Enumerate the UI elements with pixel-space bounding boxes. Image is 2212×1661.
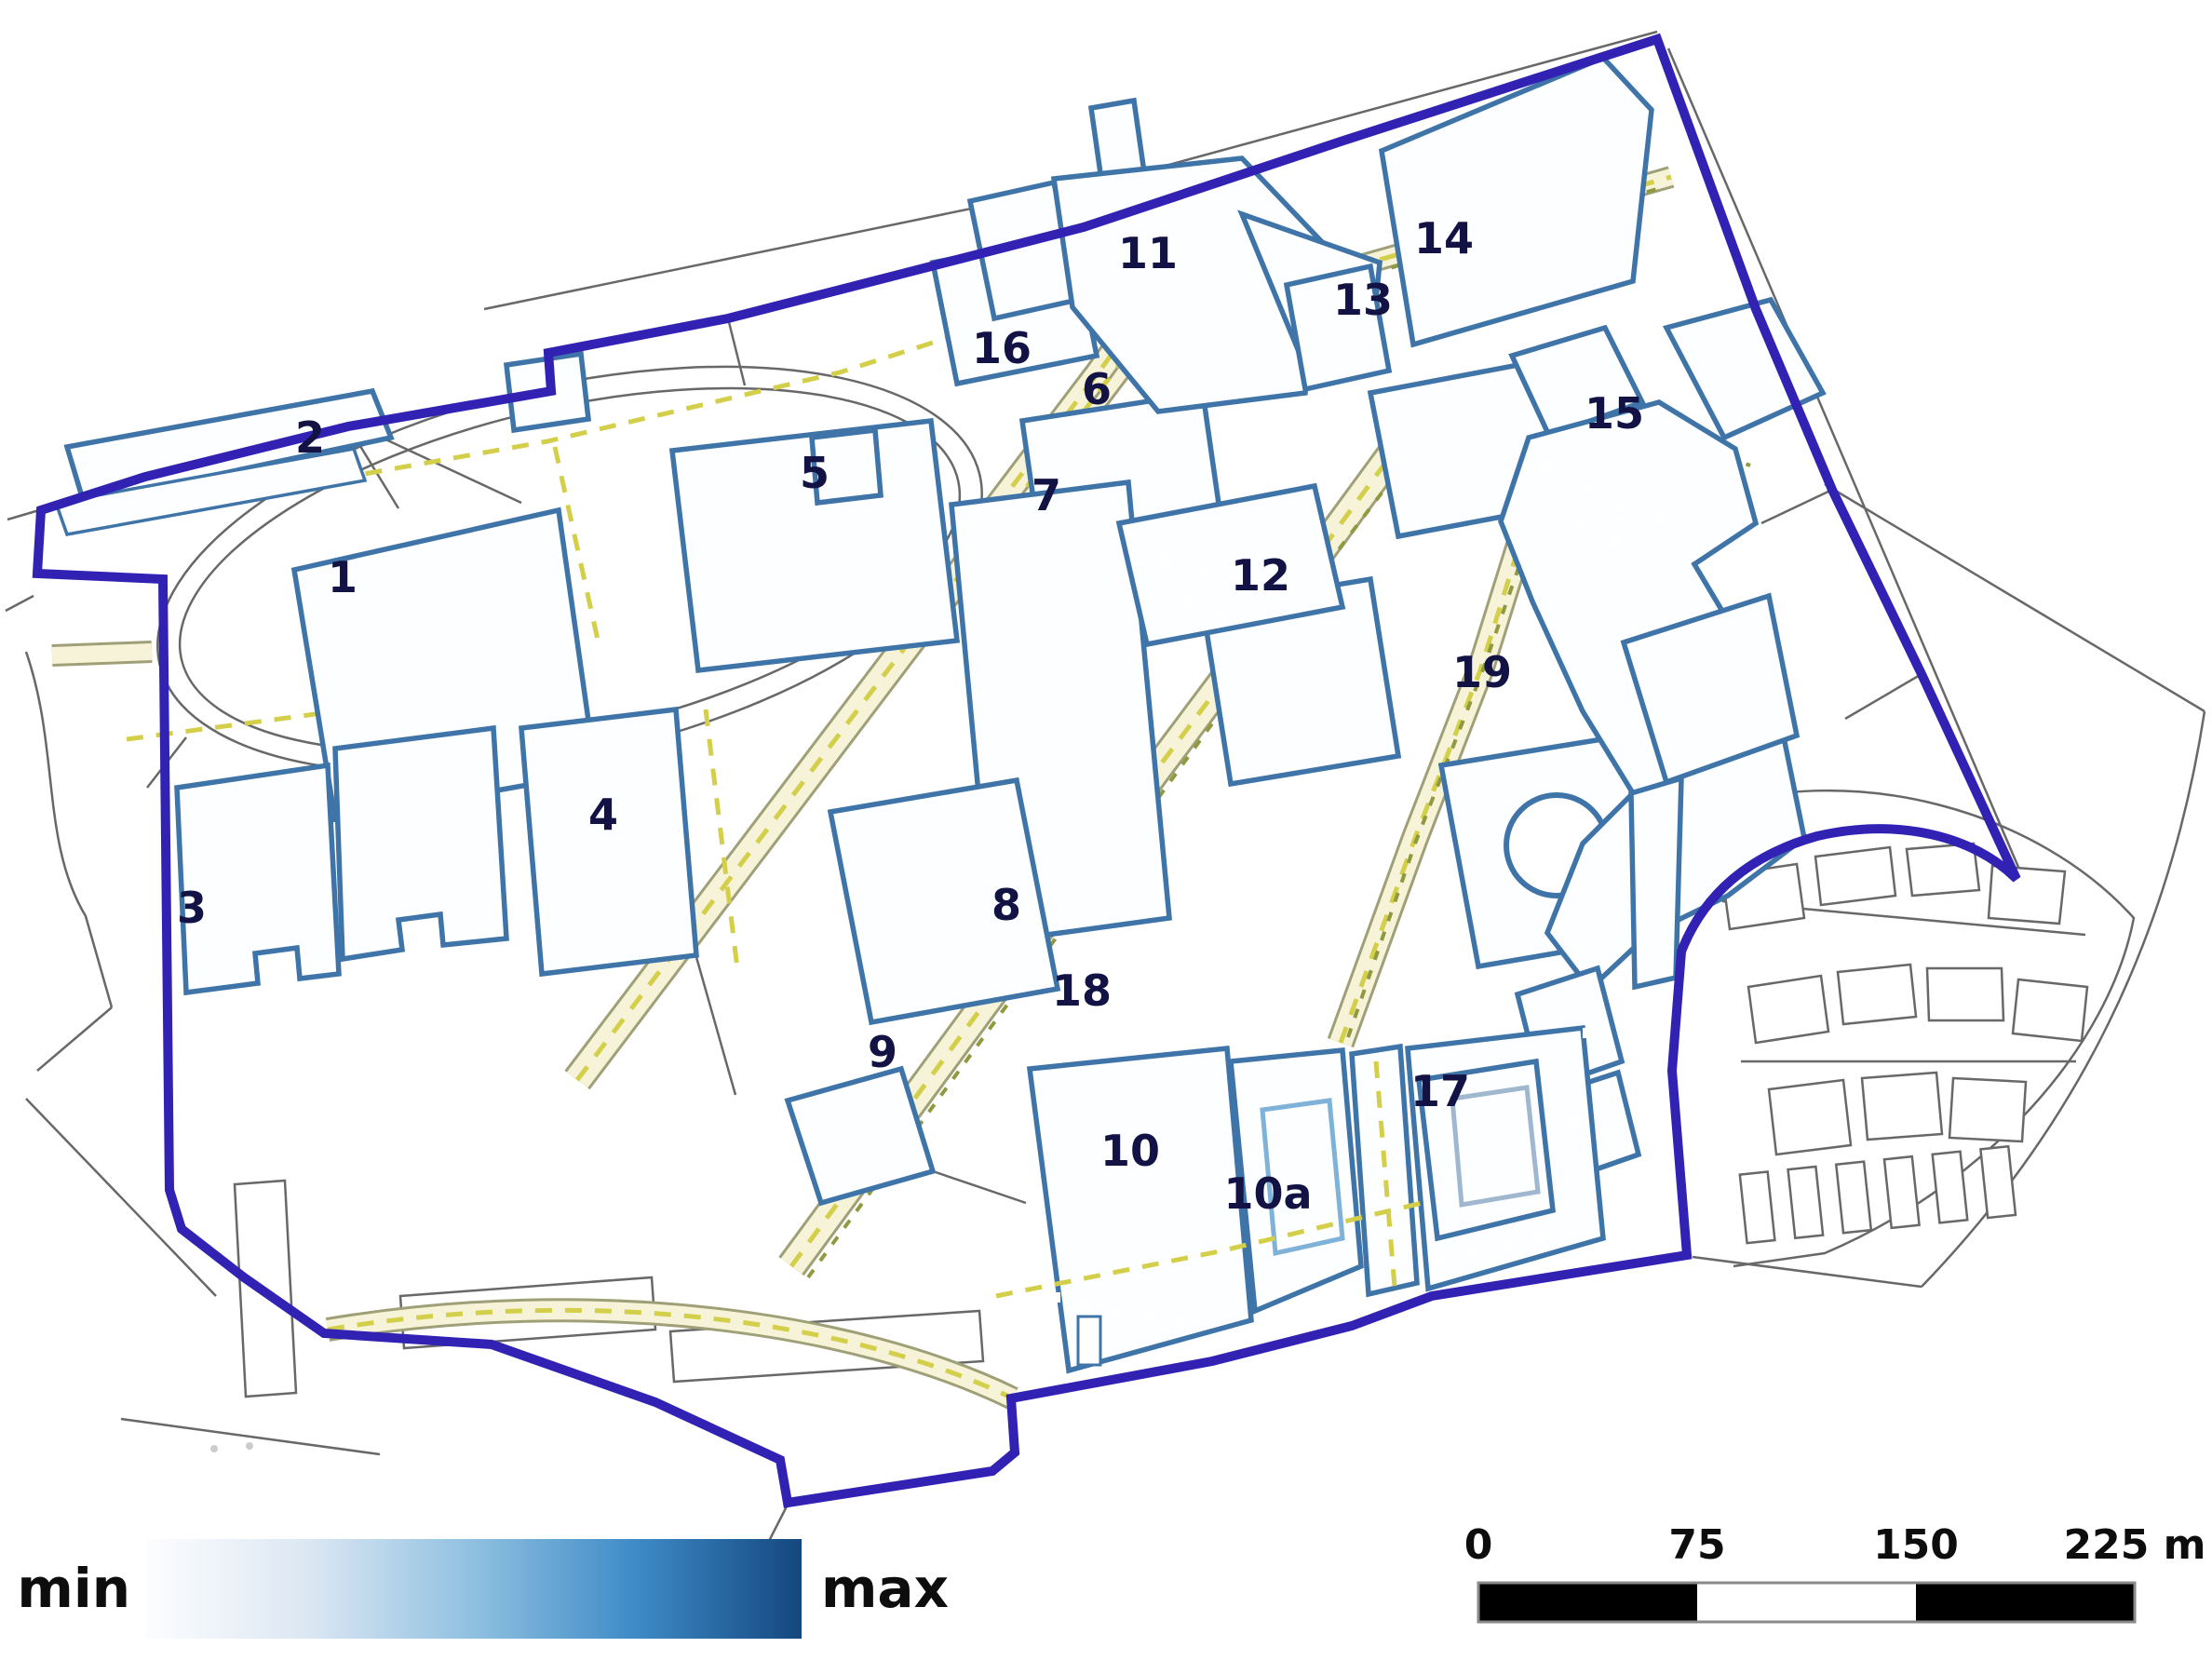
region-label-2: 2 [295, 412, 325, 463]
scale-bar-segment [1478, 1583, 1697, 1622]
legend-min-label: min [17, 1557, 130, 1620]
region-label-1: 1 [328, 552, 357, 602]
region-label-4: 4 [588, 790, 618, 840]
region-label-5: 5 [800, 448, 829, 498]
region-label-11: 11 [1118, 228, 1178, 278]
region-label-16: 16 [972, 323, 1032, 373]
artifact-dot [246, 1442, 253, 1450]
region-label-9: 9 [868, 1027, 897, 1077]
region-label-18: 18 [1052, 966, 1112, 1016]
region-label-19: 19 [1452, 647, 1512, 697]
scale-tick-1: 75 [1668, 1521, 1725, 1569]
region-label-17: 17 [1410, 1066, 1470, 1116]
building-10-door [1078, 1317, 1100, 1365]
scale-tick-0: 0 [1464, 1521, 1493, 1569]
legend-max-label: max [821, 1557, 949, 1620]
building-8 [830, 780, 1058, 1022]
region-label-15: 15 [1585, 388, 1644, 439]
scale-tick-2: 150 [1873, 1521, 1959, 1569]
region-label-10: 10 [1100, 1126, 1160, 1176]
building-10 [1030, 1048, 1251, 1371]
region-label-13: 13 [1333, 275, 1393, 325]
building-3b [335, 728, 506, 959]
region-label-8: 8 [991, 880, 1021, 930]
scale-tick-3: 225 m [2063, 1521, 2205, 1569]
legend-gradient-bar [146, 1539, 802, 1639]
region-label-7: 7 [1032, 470, 1061, 520]
building-4 [521, 709, 696, 974]
region-label-6: 6 [1082, 364, 1112, 414]
building-14 [1382, 58, 1652, 344]
region-label-10a: 10a [1223, 1168, 1312, 1219]
building-3a [177, 765, 339, 993]
figure-canvas: 1234567891010a111213141516171819 min max… [0, 0, 2212, 1661]
building-15-strip [1631, 778, 1681, 987]
scale-bar: 075150225 m [1464, 1521, 2206, 1622]
artifact-dot [210, 1445, 218, 1452]
legend: min max [17, 1442, 949, 1639]
scale-bar-segment [1697, 1583, 1916, 1622]
region-label-12: 12 [1231, 550, 1290, 601]
region-label-14: 14 [1414, 213, 1474, 263]
site-map: 1234567891010a111213141516171819 min max… [0, 0, 2212, 1661]
region-label-3: 3 [177, 883, 207, 933]
scale-bar-segment [1916, 1583, 2135, 1622]
